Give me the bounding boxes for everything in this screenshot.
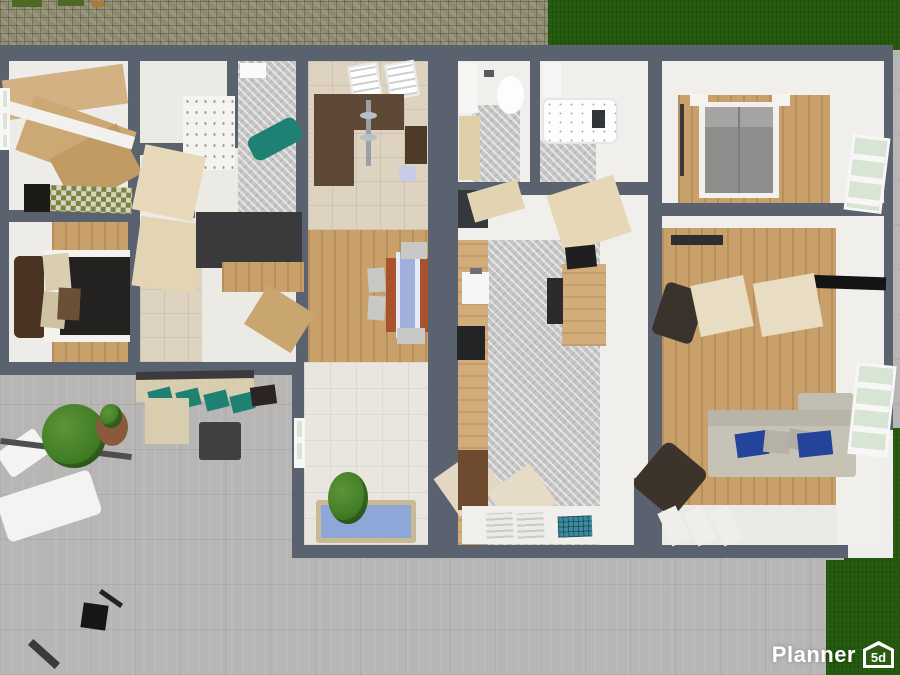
- sofa-pillow-blue-2[interactable]: [797, 430, 833, 457]
- faucet-bathroom-1[interactable]: [484, 70, 494, 77]
- washer-bathroom-1[interactable]: [459, 63, 478, 113]
- garden-shrub-strip-2: [58, 0, 84, 6]
- bar-counter-side[interactable]: [145, 398, 189, 444]
- wall-bottom-main[interactable]: [292, 545, 848, 558]
- toilet-bathroom-1[interactable]: [497, 76, 524, 114]
- hob-lavender[interactable]: [399, 166, 416, 181]
- floor-lamp-pole[interactable]: [366, 100, 371, 166]
- cabinet-bathroom-1[interactable]: [459, 116, 480, 180]
- wall-top[interactable]: [0, 45, 893, 61]
- watermark-text: Planner: [772, 642, 856, 668]
- bed-center-seam[interactable]: [738, 107, 740, 193]
- desk-cream-1[interactable]: [690, 275, 754, 337]
- window-hall-left[interactable]: [294, 418, 305, 468]
- sink-bathroom-3[interactable]: [240, 63, 266, 78]
- planner5d-house-badge-icon: 5d: [863, 641, 894, 668]
- dining-chair-bottom[interactable]: [397, 328, 425, 344]
- wall-bath-divider[interactable]: [530, 61, 540, 185]
- bed-pillow-cream-1[interactable]: [42, 253, 71, 291]
- speaker-box[interactable]: [250, 384, 277, 406]
- office-chair[interactable]: [565, 244, 597, 269]
- floor-lamp-disc-1[interactable]: [360, 112, 377, 119]
- bathtub-fixture-dark[interactable]: [592, 110, 605, 128]
- kitchen-faucet[interactable]: [470, 268, 482, 274]
- grill-box[interactable]: [199, 422, 241, 460]
- patio-lamp-black[interactable]: [80, 602, 108, 630]
- window-wardrobe-room[interactable]: [0, 88, 10, 150]
- bathtub-jacuzzi[interactable]: [542, 98, 618, 144]
- doormat-teal-grid[interactable]: [558, 515, 593, 537]
- dining-table-runner[interactable]: [396, 252, 420, 338]
- dining-chair-left-2[interactable]: [367, 295, 386, 320]
- floorplan-3d-canvas[interactable]: Planner 5d: [0, 0, 900, 675]
- dining-chair-top[interactable]: [401, 242, 427, 259]
- patio-bush[interactable]: [42, 404, 106, 468]
- kitchen-counter-brown-left[interactable]: [314, 94, 354, 186]
- curtain-rod[interactable]: [680, 104, 684, 176]
- nightstand-2[interactable]: [772, 94, 790, 106]
- tv-slab[interactable]: [806, 275, 886, 291]
- mat-striped-1[interactable]: [485, 512, 513, 538]
- bed-pillow-brown[interactable]: [57, 287, 81, 320]
- bed-corner-dark[interactable]: [24, 184, 50, 212]
- sofa-backrest[interactable]: [708, 410, 856, 426]
- potted-plant-leaves[interactable]: [100, 404, 122, 428]
- desk-wood[interactable]: [562, 264, 606, 346]
- planner5d-watermark: Planner 5d: [772, 641, 894, 668]
- kitchen-stove[interactable]: [457, 326, 485, 360]
- nightstand-1[interactable]: [690, 94, 708, 106]
- cabinet-bathroom-2[interactable]: [543, 63, 561, 97]
- floor-lamp-disc-2[interactable]: [360, 134, 377, 141]
- cabinet-brown-small[interactable]: [405, 126, 427, 164]
- kitchen-sink[interactable]: [462, 272, 489, 304]
- dining-chair-left-1[interactable]: [367, 267, 386, 292]
- dresser-cream-2[interactable]: [131, 216, 204, 294]
- garden-shrub-strip-1: [12, 0, 42, 7]
- island-wood-front[interactable]: [222, 262, 304, 292]
- side-chair-dark[interactable]: [547, 278, 563, 324]
- grass-lawn-top: [548, 0, 900, 50]
- house-badge-label: 5d: [863, 641, 894, 668]
- shelf-slab-dark[interactable]: [671, 235, 723, 245]
- mat-striped-2[interactable]: [516, 512, 544, 538]
- desk-cream-2[interactable]: [753, 273, 823, 337]
- floor-bathroom-2-marble[interactable]: [540, 140, 596, 182]
- island-counter-dark[interactable]: [196, 212, 302, 268]
- kitchen-cabinet-brown-tall[interactable]: [458, 450, 488, 510]
- plant-hall[interactable]: [328, 472, 368, 524]
- garden-planter: [92, 1, 104, 7]
